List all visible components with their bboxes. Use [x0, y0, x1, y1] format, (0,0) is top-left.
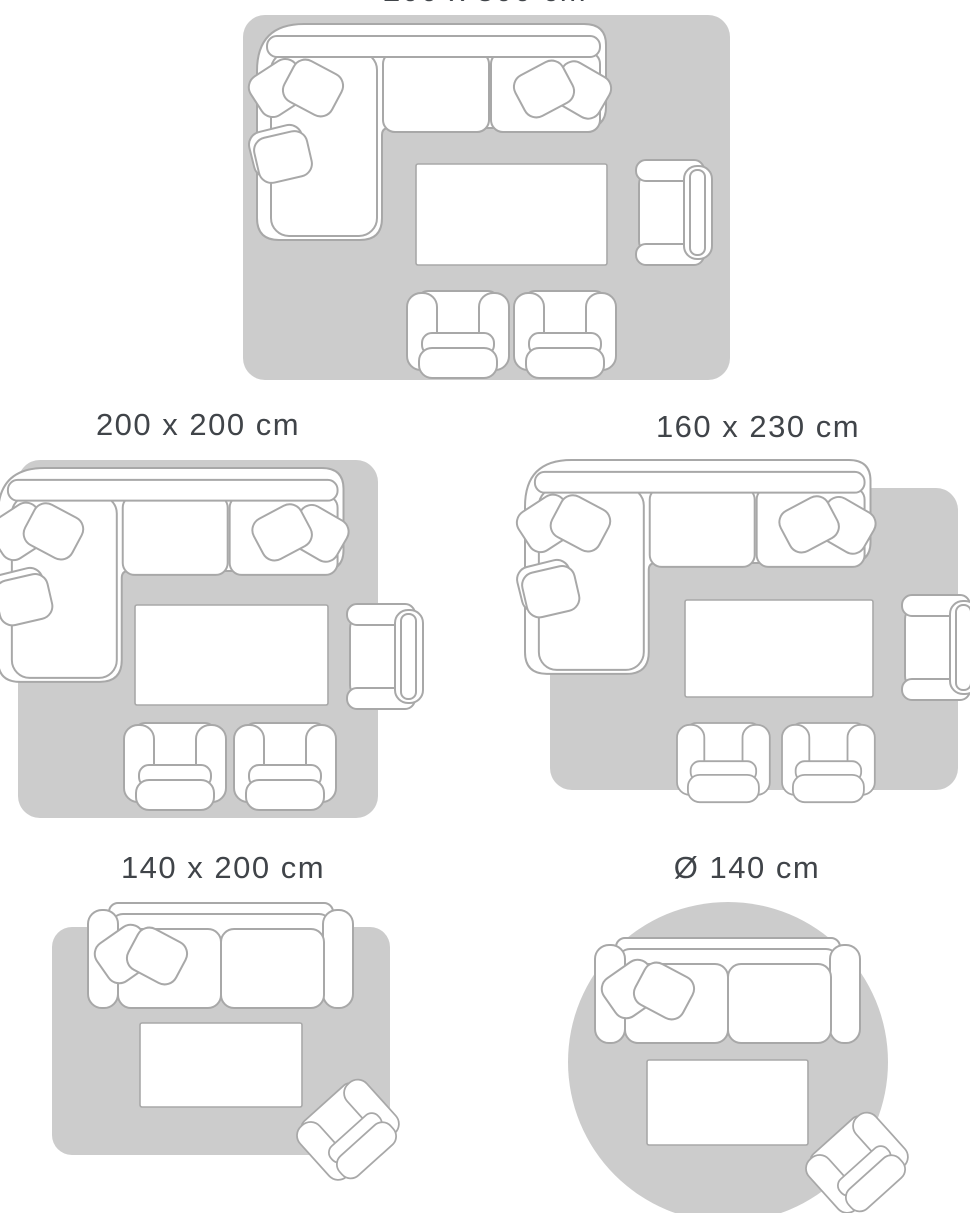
- chair-illustration: [782, 723, 875, 802]
- size-label-160x230: 160 x 230 cm: [656, 409, 860, 445]
- coffee-table-illustration: [685, 600, 873, 697]
- chair-illustration: [234, 723, 336, 810]
- coffee-table-illustration: [135, 605, 328, 705]
- sofa-illustration: [595, 938, 860, 1043]
- size-label-140x200: 140 x 200 cm: [121, 850, 325, 886]
- layout-200x200: [0, 455, 445, 825]
- size-label-diameter-140: Ø 140 cm: [674, 850, 820, 886]
- armchair-illustration: [636, 160, 712, 265]
- chair-illustration: [514, 291, 616, 378]
- sofa-illustration: [88, 903, 353, 1008]
- coffee-table-illustration: [647, 1060, 808, 1145]
- chair-illustration: [677, 723, 770, 802]
- chair-illustration: [407, 291, 509, 378]
- size-label-200x200: 200 x 200 cm: [96, 407, 300, 443]
- chair-illustration: [124, 723, 226, 810]
- layout-160x230: [500, 450, 970, 822]
- layout-200x300: [0, 0, 970, 392]
- coffee-table-illustration: [140, 1023, 302, 1107]
- layout-diameter-140: [500, 890, 970, 1213]
- armchair-illustration: [902, 595, 970, 700]
- armchair-illustration: [347, 604, 423, 709]
- coffee-table-illustration: [416, 164, 607, 265]
- layout-140x200: [0, 890, 480, 1213]
